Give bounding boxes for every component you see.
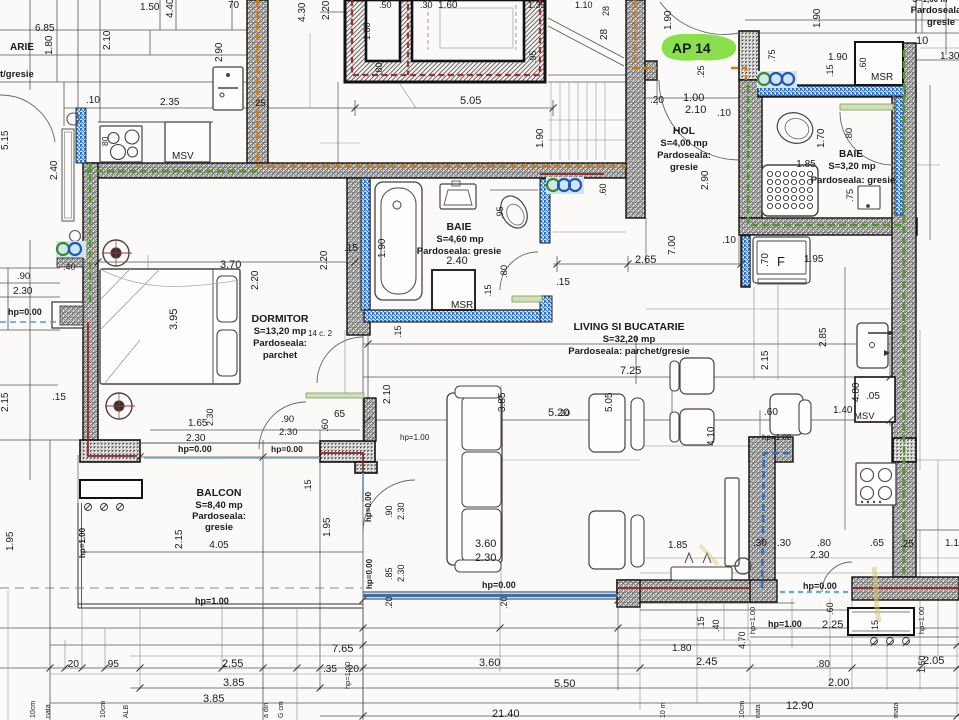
svg-text:.30: .30	[777, 538, 791, 549]
svg-text:.60: .60	[320, 419, 331, 432]
svg-text:hp=0.00: hp=0.00	[364, 491, 373, 522]
svg-text:1.50: 1.50	[140, 2, 160, 13]
svg-text:2.10: 2.10	[685, 104, 706, 116]
svg-text:80: 80	[100, 136, 110, 146]
svg-text:.90: .90	[281, 414, 294, 425]
svg-text:.15: .15	[556, 277, 570, 288]
svg-text:10cm: 10cm	[30, 701, 37, 718]
svg-text:.65: .65	[870, 538, 884, 549]
svg-text:.80: .80	[374, 62, 384, 75]
svg-text:hp=1.00: hp=1.00	[748, 607, 757, 634]
svg-text:Pardoseala: Pardoseala	[911, 5, 959, 16]
svg-text:1.80: 1.80	[44, 35, 55, 55]
svg-text:2.30: 2.30	[13, 286, 33, 297]
svg-text:1.00: 1.00	[683, 92, 704, 104]
svg-text:5.05: 5.05	[604, 392, 615, 412]
svg-text:.30: .30	[753, 538, 767, 549]
svg-text:.25: .25	[696, 65, 706, 78]
svg-text:.60: .60	[598, 183, 608, 196]
svg-text:LIVING SI BUCATARIE: LIVING SI BUCATARIE	[573, 321, 684, 333]
svg-text:1.95: 1.95	[804, 254, 824, 265]
svg-text:.80: .80	[816, 659, 830, 670]
svg-text:4.05: 4.05	[209, 540, 229, 551]
svg-text:.20: .20	[650, 95, 664, 106]
svg-text:2.15: 2.15	[174, 529, 185, 549]
svg-text:.10: .10	[913, 35, 928, 47]
svg-text:hp=0.00: hp=0.00	[803, 581, 837, 591]
svg-text:.40: .40	[711, 619, 721, 632]
svg-text:.70: .70	[760, 253, 771, 267]
svg-text:1.85: 1.85	[668, 540, 688, 551]
svg-text:2.85: 2.85	[818, 327, 829, 347]
svg-text:1.90: 1.90	[663, 10, 674, 30]
svg-text:hp=1.00: hp=1.00	[768, 619, 802, 629]
svg-text:1.70: 1.70	[816, 128, 827, 148]
svg-text:3.60: 3.60	[479, 657, 500, 669]
svg-text:2.30: 2.30	[205, 408, 215, 426]
svg-text:2.00: 2.00	[828, 677, 849, 689]
svg-text:2.55: 2.55	[222, 658, 243, 670]
svg-text:BAIE: BAIE	[839, 149, 863, 160]
svg-text:MSV: MSV	[172, 151, 194, 162]
svg-text:.35: .35	[323, 664, 337, 675]
svg-text:4.70: 4.70	[737, 631, 747, 649]
svg-text:.95: .95	[528, 50, 538, 63]
svg-text:gresie: gresie	[205, 522, 233, 533]
svg-text:.80: .80	[817, 538, 831, 549]
svg-text:.75: .75	[767, 49, 777, 62]
svg-text:.15: .15	[483, 284, 493, 297]
svg-text:HOL: HOL	[673, 125, 696, 137]
svg-text:hp=0.00: hp=0.00	[271, 444, 303, 454]
svg-text:S=32,20 mp: S=32,20 mp	[603, 334, 656, 345]
svg-text:15: 15	[870, 620, 880, 630]
svg-text:a din: a din	[263, 703, 270, 718]
svg-text:2.90: 2.90	[700, 170, 711, 190]
svg-text:.15: .15	[52, 392, 66, 403]
svg-text:1.90: 1.90	[828, 52, 848, 63]
svg-text:25: 25	[255, 98, 266, 109]
svg-text:hp=0.00: hp=0.00	[365, 558, 374, 589]
svg-text:1.1: 1.1	[945, 538, 959, 549]
svg-text:.05: .05	[866, 391, 880, 402]
svg-text:3.85: 3.85	[223, 677, 244, 689]
svg-text:1.10: 1.10	[575, 0, 593, 10]
svg-text:6.85: 6.85	[35, 23, 55, 34]
svg-text:.20: .20	[384, 596, 394, 609]
svg-text:MSR: MSR	[451, 300, 473, 311]
svg-text:1.85: 1.85	[796, 159, 816, 170]
svg-text:nata: nata	[755, 704, 762, 718]
svg-text:4.40: 4.40	[165, 0, 176, 18]
svg-text:1.40: 1.40	[833, 405, 853, 416]
svg-text:5.05: 5.05	[460, 95, 481, 107]
svg-text:.15: .15	[393, 325, 403, 338]
svg-text:.60: .60	[764, 407, 778, 418]
svg-text:2.20: 2.20	[321, 0, 332, 20]
svg-text:.20: .20	[65, 659, 79, 670]
svg-text:2.10: 2.10	[102, 30, 113, 50]
svg-text:2.35: 2.35	[160, 97, 180, 108]
svg-text:1.95: 1.95	[322, 517, 333, 537]
svg-text:2.25: 2.25	[822, 619, 843, 631]
svg-text:2.15: 2.15	[0, 392, 11, 412]
svg-text:S=4,60 mp: S=4,60 mp	[436, 234, 483, 245]
svg-text:.60: .60	[858, 57, 868, 70]
svg-text:gresie: gresie	[670, 162, 698, 173]
svg-text:4.30: 4.30	[297, 2, 308, 22]
svg-text:.90: .90	[384, 505, 394, 518]
svg-text:2.30: 2.30	[186, 433, 206, 444]
svg-text:F: F	[777, 254, 785, 269]
svg-text:hp=1.00: hp=1.00	[195, 596, 229, 606]
svg-text:.85: .85	[384, 567, 394, 580]
svg-text:3.85: 3.85	[203, 693, 224, 705]
svg-text:2.30: 2.30	[475, 552, 496, 564]
svg-text:28: 28	[599, 28, 610, 40]
svg-text:4.10: 4.10	[706, 426, 717, 446]
svg-text:.95: .95	[495, 206, 505, 219]
svg-text:7.25: 7.25	[620, 365, 641, 377]
svg-text:S=8,40 mp: S=8,40 mp	[195, 500, 242, 511]
svg-text:2.30: 2.30	[396, 564, 406, 582]
svg-text:1.90: 1.90	[812, 8, 823, 28]
svg-text:2.20: 2.20	[250, 270, 261, 290]
svg-text:1.00: 1.00	[362, 22, 372, 40]
svg-text:.10: .10	[722, 235, 736, 246]
svg-text:S=3,20 mp: S=3,20 mp	[828, 161, 875, 172]
svg-text:2.65: 2.65	[635, 254, 656, 266]
svg-text:.75: .75	[845, 189, 856, 202]
svg-text:3.70: 3.70	[220, 259, 241, 271]
svg-text:2.30: 2.30	[810, 550, 830, 561]
svg-text:.15: .15	[303, 479, 313, 492]
svg-text:.15: .15	[696, 616, 706, 629]
svg-text:hp=1.00: hp=1.00	[400, 433, 430, 442]
svg-text:.25: .25	[900, 539, 914, 550]
svg-text:.20: .20	[499, 596, 509, 609]
svg-text:1.95: 1.95	[5, 531, 16, 551]
svg-text:.50: .50	[379, 0, 392, 10]
svg-text:hp=1.00: hp=1.00	[78, 527, 87, 558]
svg-text:20: 20	[560, 408, 570, 418]
svg-text:mata: mata	[893, 702, 900, 718]
svg-text:1.50: 1.50	[917, 655, 927, 673]
svg-text:Pardoseala: gresie: Pardoseala: gresie	[811, 175, 896, 186]
svg-text:hp=1.00: hp=1.00	[343, 662, 352, 689]
svg-text:.60: .60	[825, 602, 835, 615]
svg-text:2.40: 2.40	[49, 160, 60, 180]
svg-text:3.95: 3.95	[168, 309, 180, 330]
svg-text:G cm: G cm	[278, 701, 285, 718]
svg-text:10 m: 10 m	[660, 702, 667, 718]
svg-text:Pardoseala:: Pardoseala:	[657, 150, 711, 161]
svg-text:parchet: parchet	[263, 350, 298, 361]
svg-text:2.40: 2.40	[446, 255, 467, 267]
svg-text:70: 70	[228, 0, 240, 11]
svg-text:2.20: 2.20	[319, 250, 330, 270]
svg-text:7.00: 7.00	[667, 235, 678, 255]
svg-text:hp=1.00: hp=1.00	[917, 607, 926, 634]
svg-text:Pardoseala:: Pardoseala:	[192, 511, 246, 522]
svg-text:ARIE: ARIE	[10, 42, 34, 53]
svg-text:1.90: 1.90	[377, 238, 388, 258]
svg-text:2.30: 2.30	[279, 427, 298, 438]
svg-text:Pardoseala:: Pardoseala:	[253, 338, 307, 349]
svg-text:1.60: 1.60	[438, 0, 458, 11]
svg-text:2.45: 2.45	[696, 656, 717, 668]
svg-text:.15: .15	[344, 243, 358, 254]
svg-text:1.35: 1.35	[528, 0, 546, 10]
svg-text:DORMITOR: DORMITOR	[252, 313, 309, 325]
svg-text:2.30: 2.30	[396, 502, 406, 520]
svg-text:ALB: ALB	[123, 704, 130, 718]
svg-text:MSV: MSV	[854, 411, 875, 422]
svg-text:.90: .90	[17, 271, 30, 282]
svg-text:hp=0.00: hp=0.00	[482, 580, 516, 590]
svg-text:.10: .10	[717, 108, 731, 119]
svg-text:5.15: 5.15	[0, 130, 11, 150]
svg-text:5.50: 5.50	[554, 678, 575, 690]
svg-text:hp=0.00: hp=0.00	[8, 307, 42, 317]
svg-text:S=4,00 mp: S=4,00 mp	[660, 138, 707, 149]
svg-text:4.80: 4.80	[851, 382, 862, 402]
svg-text:2.90: 2.90	[214, 42, 225, 62]
svg-text:1.90: 1.90	[535, 128, 546, 148]
svg-text:10cm: 10cm	[100, 701, 107, 718]
svg-text:.10: .10	[86, 95, 100, 106]
svg-text:3.60: 3.60	[475, 538, 496, 550]
svg-text:.80: .80	[844, 128, 855, 141]
svg-text:2.10: 2.10	[382, 384, 393, 404]
svg-text:.95: .95	[105, 659, 119, 670]
svg-text:S=1,00 m: S=1,00 m	[913, 0, 948, 4]
svg-text:Pardoseala: parchet/gresie: Pardoseala: parchet/gresie	[568, 346, 689, 357]
svg-text:.15: .15	[825, 64, 835, 77]
svg-text:1.80: 1.80	[672, 643, 692, 654]
svg-text:BALCON: BALCON	[197, 487, 242, 499]
svg-text:10cm: 10cm	[739, 701, 746, 718]
svg-text:65: 65	[334, 409, 346, 420]
svg-text:21.40: 21.40	[492, 708, 520, 720]
svg-text:1.30: 1.30	[940, 51, 959, 62]
svg-text:.80: .80	[499, 265, 510, 278]
svg-text:hp=0.00: hp=0.00	[178, 444, 212, 454]
svg-text:2.15: 2.15	[760, 350, 771, 370]
svg-text:t/gresie: t/gresie	[0, 69, 34, 80]
svg-text:AP 14: AP 14	[672, 40, 711, 56]
svg-text:28: 28	[601, 6, 611, 16]
svg-text:hp=1.00: hp=1.00	[762, 433, 792, 442]
svg-text:14 c. 2: 14 c. 2	[308, 329, 333, 338]
svg-text:12.90: 12.90	[786, 700, 814, 712]
svg-text:7.65: 7.65	[332, 643, 353, 655]
svg-text:.30: .30	[420, 0, 433, 10]
svg-text:MSR: MSR	[871, 72, 893, 83]
svg-text:gresie: gresie	[927, 17, 955, 28]
svg-text:.40: .40	[63, 262, 76, 272]
svg-text:3.85: 3.85	[497, 392, 508, 412]
svg-text:S=13,20 mp: S=13,20 mp	[254, 326, 307, 337]
svg-text:BAIE: BAIE	[446, 221, 471, 233]
svg-text:nata: nata	[45, 704, 52, 718]
